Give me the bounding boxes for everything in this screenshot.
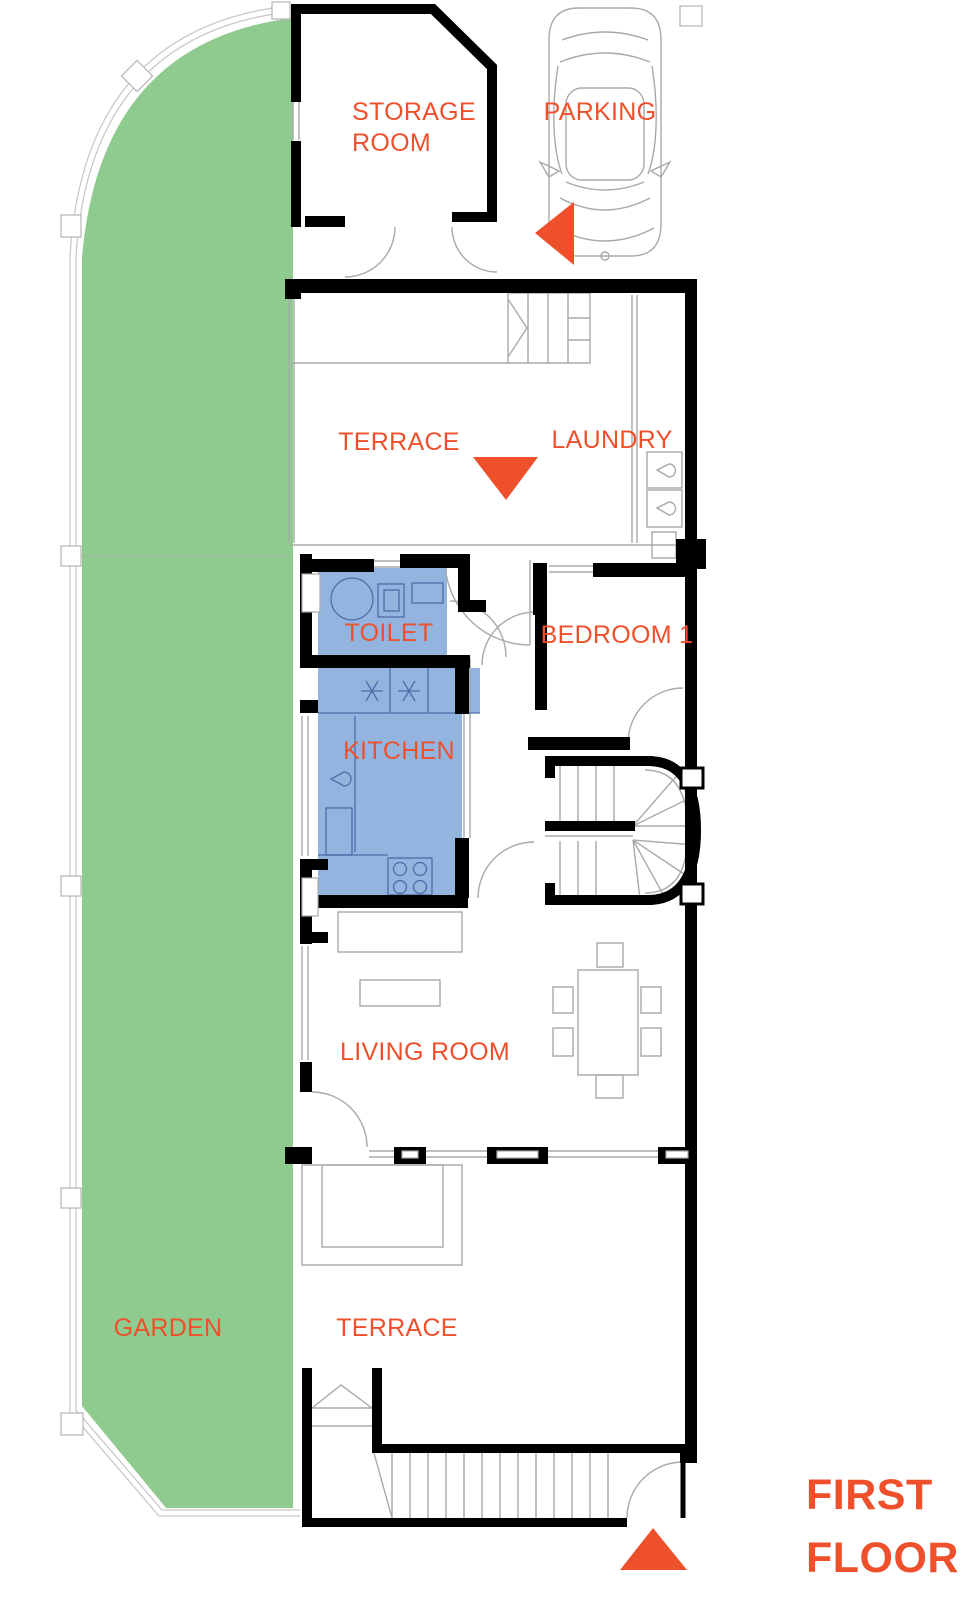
door-arc bbox=[482, 612, 535, 665]
dining-table-set bbox=[553, 943, 661, 1098]
entrance-arrow-up-icon bbox=[620, 1528, 687, 1570]
floor-plan-svg bbox=[0, 0, 977, 1600]
label-laundry: LAUNDRY bbox=[551, 425, 672, 456]
title-line-1: FIRST bbox=[806, 1464, 959, 1527]
page-title: FIRST FLOOR bbox=[806, 1464, 959, 1590]
upper-stairs bbox=[291, 293, 590, 363]
terrace-planter bbox=[302, 1165, 462, 1265]
label-kitchen: KITCHEN bbox=[343, 736, 455, 767]
label-storage-room: STORAGE ROOM bbox=[352, 97, 476, 159]
garden-area bbox=[80, 18, 293, 1508]
door-arc bbox=[345, 227, 395, 277]
door-arc bbox=[628, 688, 683, 743]
sideboard bbox=[338, 912, 462, 952]
label-terrace-lower: TERRACE bbox=[336, 1313, 458, 1344]
door-arc bbox=[478, 842, 534, 898]
label-living-room: LIVING ROOM bbox=[340, 1037, 510, 1068]
direction-arrows bbox=[473, 202, 687, 1570]
door-arc bbox=[452, 227, 497, 272]
floor-plan: STORAGE ROOM PARKING TERRACE LAUNDRY TOI… bbox=[0, 0, 977, 1600]
door-arc bbox=[445, 560, 530, 645]
label-terrace-upper: TERRACE bbox=[338, 427, 460, 458]
door-arc bbox=[312, 1092, 367, 1147]
title-line-2: FLOOR bbox=[806, 1527, 959, 1590]
coffee-table bbox=[360, 980, 440, 1006]
label-toilet: TOILET bbox=[345, 618, 434, 649]
parking-arrow-left-icon bbox=[535, 202, 574, 265]
label-garden: GARDEN bbox=[114, 1313, 223, 1344]
terrace-arrow-down-icon bbox=[473, 457, 538, 500]
door-arc bbox=[627, 1462, 683, 1518]
terrace-planter bbox=[322, 1165, 443, 1247]
label-bedroom-1: BEDROOM 1 bbox=[541, 620, 694, 651]
label-parking: PARKING bbox=[544, 97, 657, 128]
